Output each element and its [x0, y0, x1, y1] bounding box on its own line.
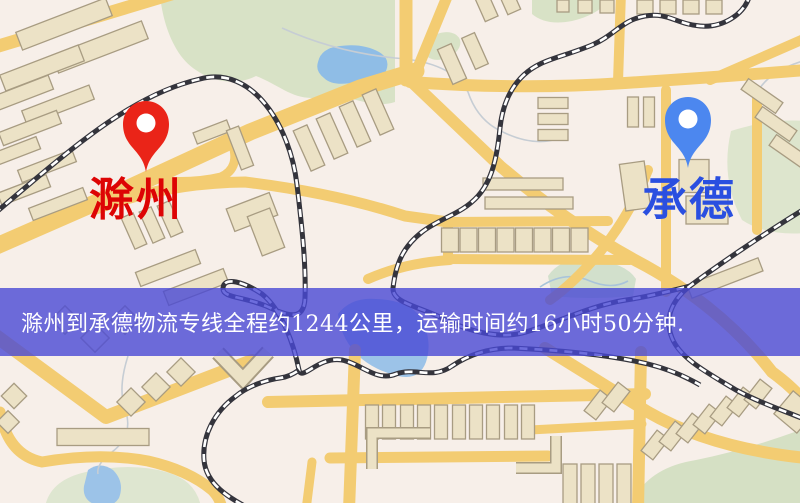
origin-city-label: 滁州: [89, 177, 183, 222]
route-info-text: 滁州到承德物流专线全程约1244公里，运输时间约16小时50分钟.: [0, 306, 684, 338]
logistics-route-map: 滁州 承德 滁州到承德物流专线全程约1244公里，运输时间约16小时50分钟.: [0, 0, 800, 503]
map-base: [0, 0, 800, 503]
destination-city-label: 承德: [642, 177, 736, 222]
route-info-banner: 滁州到承德物流专线全程约1244公里，运输时间约16小时50分钟.: [0, 288, 800, 356]
